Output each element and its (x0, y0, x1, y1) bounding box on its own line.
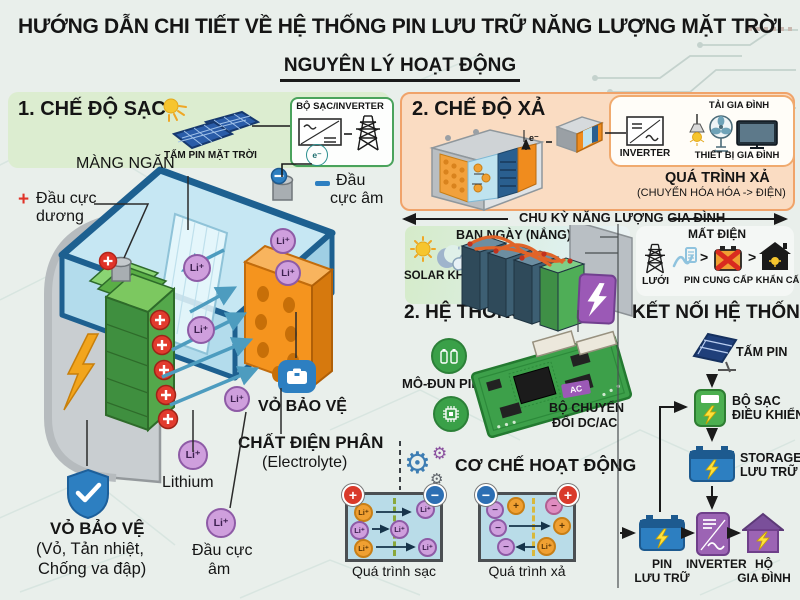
converter-label-2: ĐỔI DC/AC (552, 417, 617, 431)
discharge-electron-label: e⁻ (529, 134, 539, 144)
li-ion-orange: Li⁺ (354, 539, 373, 558)
solar-panel-label: TẤM PIN MẶT TRỜI (164, 151, 257, 162)
fan-icon (708, 114, 734, 154)
negative-dash (315, 181, 330, 186)
connection-panel-icon (688, 330, 740, 374)
household-load-label: TẢI GIA ĐÌNH (686, 101, 792, 111)
mechanism-heading: CƠ CHẾ HOẠT ĐỘNG (455, 456, 636, 475)
discharge-process-sub: (CHUYỂN HÓA HÓA -> ĐIỆN) (637, 188, 786, 200)
charge-section-heading: 1. CHẾ ĐỘ SẠC (18, 99, 166, 121)
shield-sub-2: Chống va đập) (38, 561, 146, 579)
transmission-tower-icon (350, 110, 386, 152)
page-subtitle: NGUYÊN LÝ HOẠT ĐỘNG (0, 56, 800, 82)
outage-backup-label: PIN CUNG CẤP KHẨN CẤP (684, 276, 794, 286)
pos-terminal-label-1: Đầu cực (36, 190, 97, 207)
page-title: HƯỚNG DẪN CHI TIẾT VỀ HỆ THỐNG PIN LƯU T… (0, 16, 800, 39)
pcb-board (448, 320, 648, 438)
charging-process-label: Quá trình sạc (349, 564, 439, 579)
li-ion: Li⁺ (187, 316, 215, 344)
controller-icon (694, 389, 726, 427)
discharge-process-label: QUÁ TRÌNH XẢ (665, 171, 770, 187)
li-ion: Li⁺ (270, 228, 296, 254)
pos-sign: + (18, 190, 29, 211)
home-label-1: HỘ (744, 558, 784, 571)
grid-signal-icon (672, 244, 698, 274)
gear-icon-large: ⚙ (404, 446, 431, 481)
outage-chevron-1: > (700, 250, 708, 265)
case-icon (278, 360, 316, 393)
small-battery-icon (552, 112, 606, 156)
case-glyph (286, 368, 308, 385)
controller-label-1: BỘ SẠC (732, 395, 781, 409)
battery-store-label-1: PIN (640, 558, 684, 571)
storage-battery-icon (688, 444, 736, 484)
electrolyte-sub: (Electrolyte) (262, 454, 347, 471)
discharging-process-box: − + − + − − + − Li⁺ (478, 492, 576, 562)
inverter-icon (626, 116, 664, 148)
neg-electrode-label-1: Đầu cực (192, 542, 253, 559)
page-subtitle-text: NGUYÊN LÝ HOẠT ĐỘNG (280, 56, 520, 82)
li-ion-orange: Li⁺ (354, 503, 373, 522)
li-ion-legend: Li⁺ (178, 440, 208, 470)
negative-terminal: − (475, 484, 497, 506)
gear-icon-medium: ⚙ (432, 444, 447, 464)
inverter-purple-icon (696, 512, 730, 556)
li-ion-legend-2: Li⁺ (206, 508, 236, 538)
lithium-label: Lithium (162, 474, 214, 491)
neg-terminal-label-1: Đầu (336, 172, 365, 189)
cycle-label: CHU KỲ NĂNG LƯỢNG GIA ĐÌNH (512, 211, 732, 225)
charger-icon (298, 118, 344, 148)
pos-terminal-label-2: dương (36, 208, 84, 225)
positive-terminal: + (557, 484, 579, 506)
case-label-mid: VỎ BẢO VỆ (258, 398, 347, 415)
dead-battery-icon (712, 242, 746, 274)
connection-panel-label: TẤM PIN (736, 346, 787, 360)
discharging-process-label: Quá trình xả (482, 564, 572, 579)
shield-label: VỎ BẢO VỆ (50, 520, 144, 538)
inverter-label: INVERTER (618, 149, 672, 160)
li-ion: Li⁺ (183, 254, 211, 282)
ion-plus: + (507, 497, 525, 515)
ion-plus: + (553, 517, 571, 535)
ion-minus: − (497, 538, 515, 556)
connection-heading: KẾT NỐI HỆ THỐNG (632, 303, 800, 324)
inverter-bottom-label: INVERTER (686, 558, 740, 571)
infographic-root: HƯỚNG DẪN CHI TIẾT VỀ HỆ THỐNG PIN LƯU T… (0, 0, 800, 600)
li-ion: Li⁺ (224, 386, 250, 412)
li-ion-purple: Li⁺ (350, 521, 369, 540)
storage-battery-icon-2 (638, 512, 686, 554)
membrane-label: MÀNG NGĂN (76, 155, 175, 172)
battery-store-label-2: LƯU TRỮ (634, 572, 690, 585)
controller-label-2: ĐIỀU KHIỂN (732, 409, 800, 423)
li-ion: Li⁺ (275, 260, 301, 286)
li-ion-purple: Li⁺ (418, 538, 437, 557)
ion-minus: − (489, 519, 507, 537)
electron-label: e⁻ (312, 150, 321, 161)
converter-label-1: BỘ CHUYỂN (549, 402, 624, 416)
storage-label-1: STORAGE (740, 452, 800, 466)
shield-sub-1: (Vỏ, Tản nhiệt, (36, 541, 144, 559)
charging-process-box: + − Li⁺ Li⁺ Li⁺ Li⁺ Li⁺ Li⁺ (345, 492, 443, 562)
emergency-house-icon (758, 240, 792, 274)
neg-terminal-label-2: cực âm (330, 190, 383, 207)
electrolyte-label: CHẤT ĐIỆN PHÂN (238, 434, 383, 452)
household-devices-label: THIẾT BỊ GIA ĐÌNH (682, 151, 792, 161)
discharge-section-heading: 2. CHẾ ĐỘ XẢ (412, 99, 545, 121)
home-label-2: GIA ĐÌNH (736, 572, 792, 585)
lamp-icon (686, 114, 708, 150)
electron-circle-icon: e⁻ (306, 144, 328, 166)
outage-chevron-2: > (748, 250, 756, 265)
outage-label: MẤT ĐIỆN (672, 228, 762, 241)
negative-terminal: − (424, 484, 446, 506)
li-ion-orange: Li⁺ (537, 537, 556, 556)
home-icon (742, 512, 784, 554)
storage-label-2: LƯU TRỮ (740, 466, 798, 480)
li-ion-purple: Li⁺ (390, 520, 409, 539)
positive-terminal: + (342, 484, 364, 506)
tv-icon (736, 120, 778, 152)
shield-icon (62, 468, 114, 520)
neg-electrode-label-2: âm (208, 561, 230, 578)
